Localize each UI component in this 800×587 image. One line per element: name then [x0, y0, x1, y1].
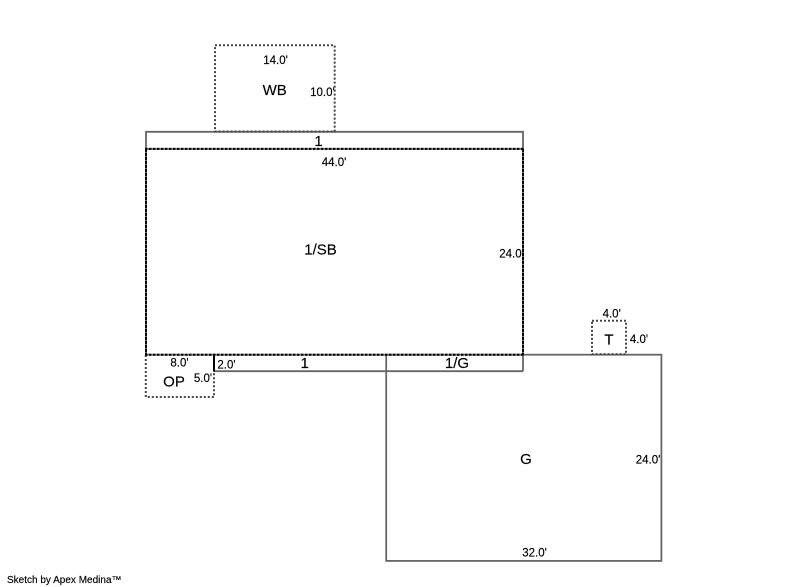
svg-text:2.0': 2.0': [217, 360, 235, 372]
svg-text:OP: OP: [163, 374, 185, 391]
svg-text:1/G: 1/G: [445, 355, 469, 372]
svg-text:G: G: [520, 451, 532, 468]
svg-text:T: T: [604, 332, 613, 349]
svg-text:5.0': 5.0': [194, 373, 212, 385]
svg-text:32.0': 32.0': [522, 548, 547, 560]
svg-text:8.0': 8.0': [170, 358, 188, 370]
svg-text:24.0': 24.0': [499, 249, 524, 261]
svg-text:4.0': 4.0': [630, 334, 648, 346]
svg-text:4.0': 4.0': [603, 309, 621, 321]
svg-text:Sketch by Apex Medina™: Sketch by Apex Medina™: [7, 575, 122, 586]
svg-text:10.0': 10.0': [310, 87, 335, 99]
svg-text:14.0': 14.0': [263, 55, 288, 67]
svg-text:24.0': 24.0': [636, 455, 661, 467]
svg-text:44.0': 44.0': [322, 157, 347, 169]
svg-text:1: 1: [314, 133, 322, 150]
svg-text:1: 1: [301, 355, 309, 372]
svg-text:1/SB: 1/SB: [304, 242, 337, 259]
svg-text:WB: WB: [263, 82, 287, 99]
